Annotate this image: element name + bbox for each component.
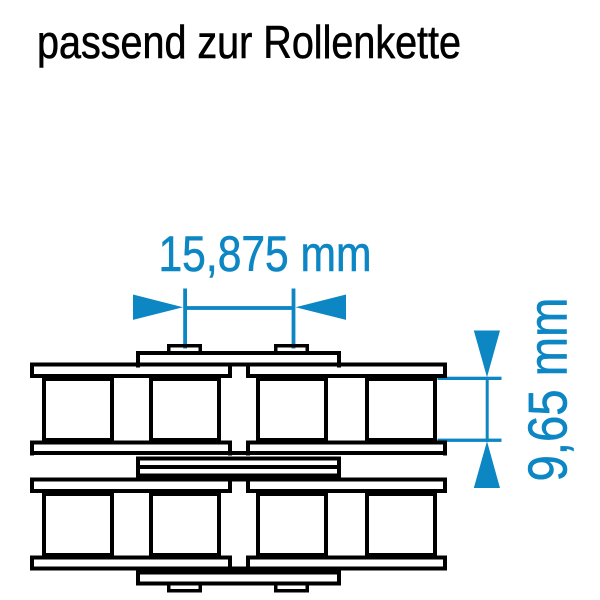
svg-text:passend zur Rollenkette: passend zur Rollenkette: [37, 16, 461, 68]
svg-text:15,875 mm: 15,875 mm: [159, 226, 372, 282]
svg-text:9,65 mm: 9,65 mm: [517, 298, 579, 482]
